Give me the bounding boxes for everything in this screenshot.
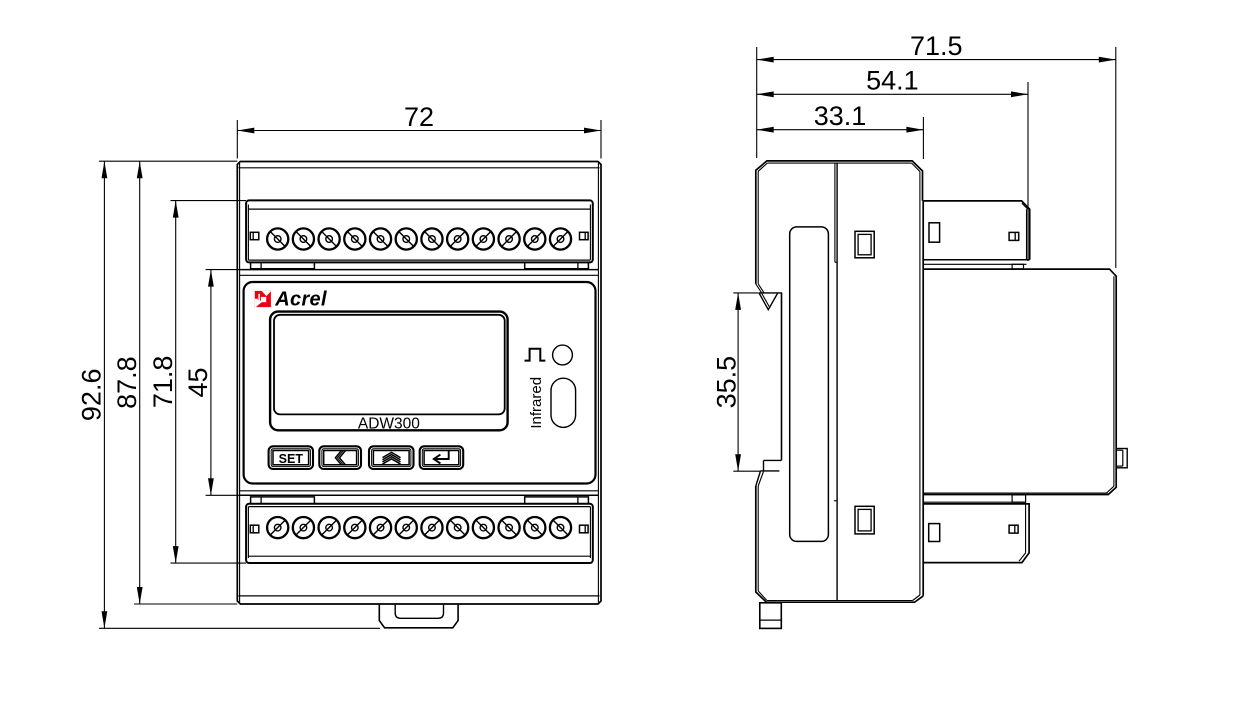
svg-text:33.1: 33.1 bbox=[814, 101, 867, 131]
svg-text:71.8: 71.8 bbox=[148, 356, 178, 409]
svg-text:Acrel: Acrel bbox=[274, 289, 327, 311]
svg-text:54.1: 54.1 bbox=[866, 66, 919, 96]
svg-text:45: 45 bbox=[183, 367, 213, 397]
svg-text:35.5: 35.5 bbox=[712, 356, 742, 409]
svg-text:72: 72 bbox=[404, 102, 434, 132]
svg-text:92.6: 92.6 bbox=[77, 369, 107, 422]
svg-text:Infrared: Infrared bbox=[528, 377, 545, 429]
svg-text:SET: SET bbox=[279, 452, 304, 466]
svg-text:87.8: 87.8 bbox=[112, 356, 142, 409]
svg-text:71.5: 71.5 bbox=[910, 31, 963, 61]
svg-text:ADW300: ADW300 bbox=[358, 416, 420, 433]
